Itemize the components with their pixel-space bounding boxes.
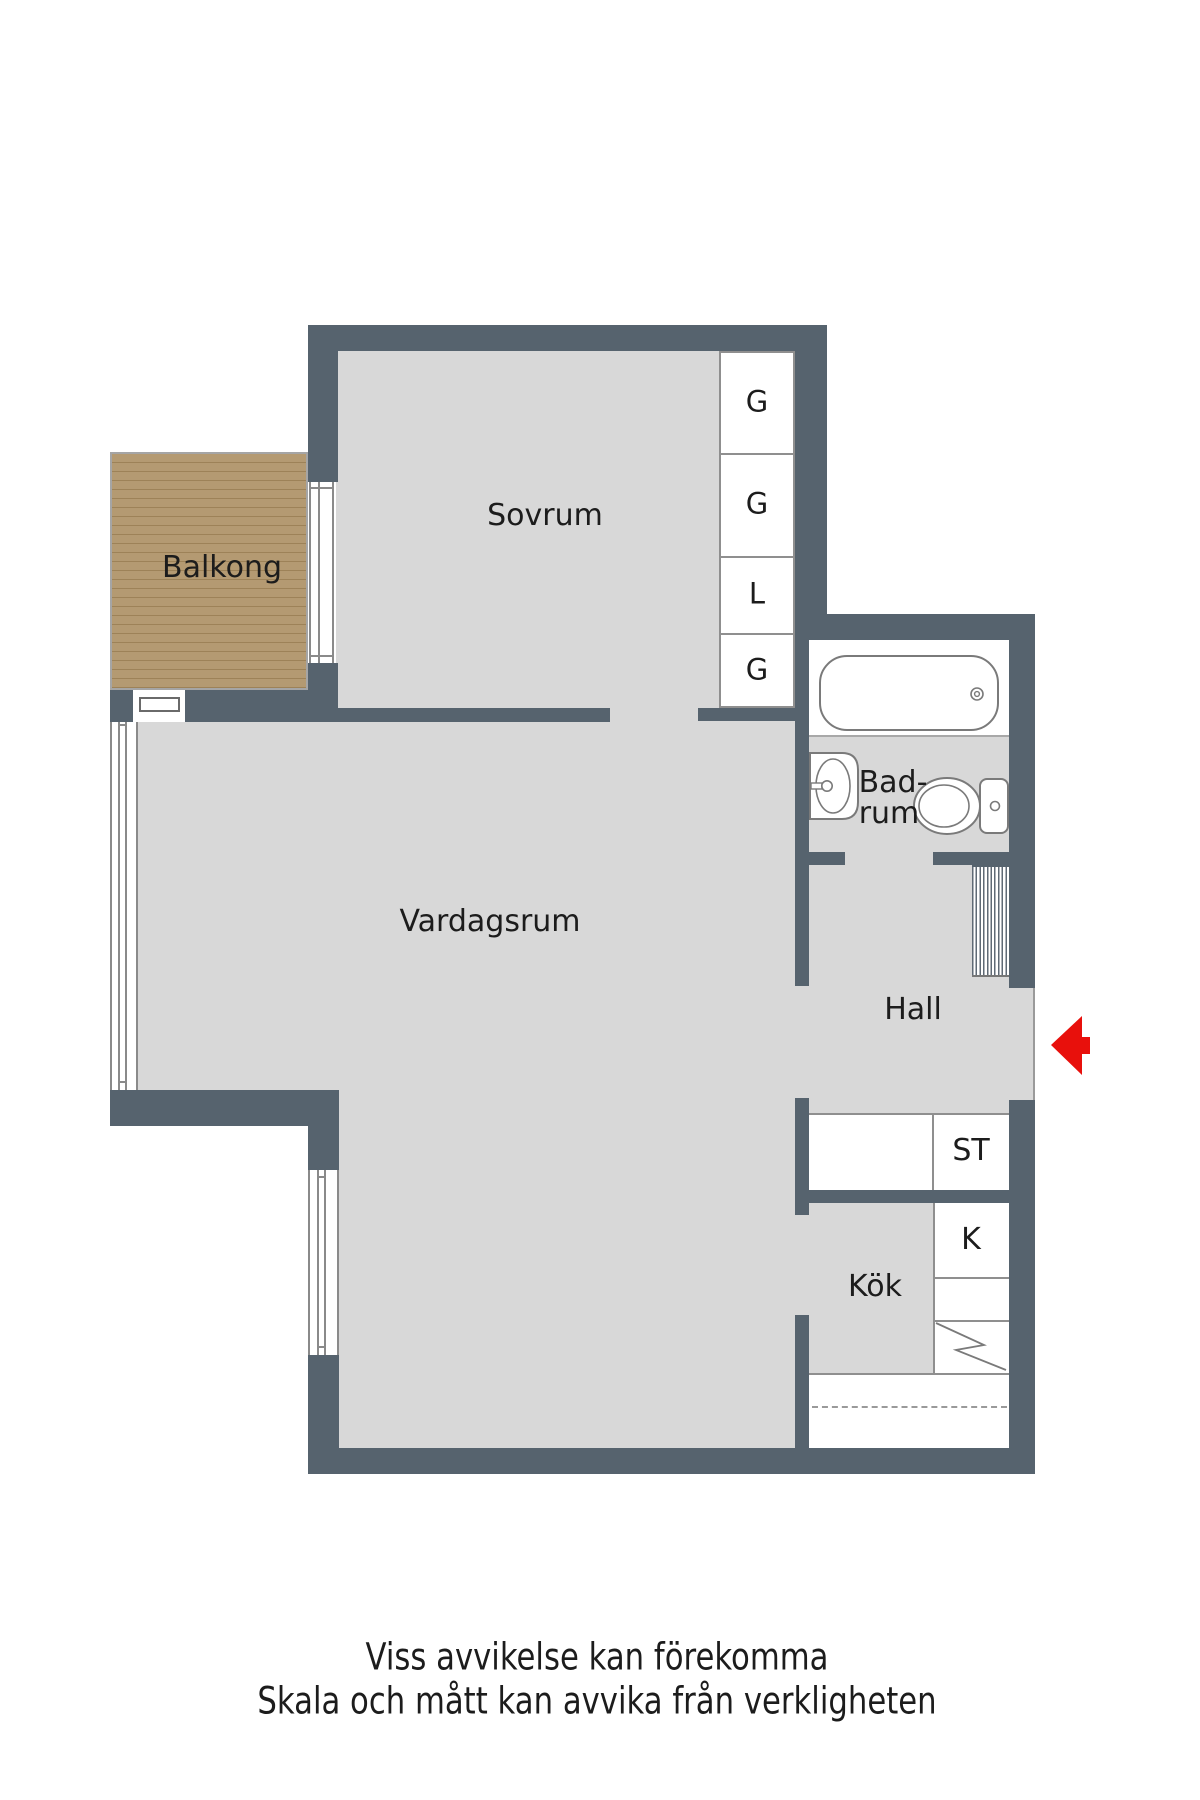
window-pane-line <box>118 722 120 1090</box>
wall-right-upper <box>795 351 827 614</box>
room-label-kok: Kök <box>848 1272 902 1302</box>
window-end-cap <box>317 1176 326 1178</box>
closet-label-g3: G <box>746 656 768 685</box>
appliance-divider <box>933 1320 1009 1322</box>
storage-label-st: ST <box>952 1136 989 1166</box>
window-pane-line <box>317 1170 319 1355</box>
window-balcony-door <box>309 482 334 663</box>
closet-label-g1: G <box>746 388 768 417</box>
window-pane-line <box>318 482 320 663</box>
hall-wardrobe <box>972 865 1009 977</box>
wall-bedroom-bottom <box>336 708 610 722</box>
closet-label-g2: G <box>746 490 768 519</box>
appliance-label-k: K <box>961 1225 981 1255</box>
wall-bathroom-hall-left <box>795 640 809 986</box>
window-end-cap <box>118 1081 127 1083</box>
floorplan: Sovrum Balkong Vardagsrum Bad- rum Hall … <box>0 0 1200 1800</box>
window-end-cap <box>311 487 332 489</box>
storage-divider <box>932 1113 934 1190</box>
window-pane-line <box>324 1170 326 1355</box>
bathtub-zone <box>809 640 1009 737</box>
wall-under-storage-row <box>809 1190 1009 1203</box>
kitchen-counter <box>809 1373 1009 1448</box>
wall-closet-bottom-stub <box>698 708 795 721</box>
room-label-balkong: Balkong <box>162 553 282 583</box>
entrance-opening <box>1009 988 1035 1100</box>
wall-top <box>308 325 827 351</box>
wall-right-middle <box>1009 640 1035 988</box>
window-livingroom-left <box>110 722 138 1090</box>
closet-divider <box>719 633 795 635</box>
wall-kitchen-left-upper <box>795 1098 809 1215</box>
entrance-arrow-icon <box>1051 1016 1090 1075</box>
wall-bottom <box>308 1448 1035 1474</box>
wall-lower-left-upper <box>308 1126 339 1170</box>
disclaimer-line2: Skala och mått kan avvika från verklighe… <box>257 1683 936 1720</box>
wall-bathroom-door-left-stub <box>795 852 845 865</box>
overhead-cabinet-dashed-line <box>812 1406 1007 1408</box>
room-label-hall: Hall <box>884 995 942 1025</box>
appliance-divider <box>933 1277 1009 1279</box>
wall-kitchen-left-lower <box>795 1315 809 1448</box>
wall-bathroom-door-right-stub <box>933 852 1035 865</box>
window-pane-line <box>125 722 127 1090</box>
wall-bedroom-left-upper <box>308 351 338 482</box>
wall-bathroom-top <box>795 614 1035 640</box>
closet-divider <box>719 453 795 455</box>
room-label-badrum-line2: rum <box>859 799 920 829</box>
window-end-cap <box>311 655 332 657</box>
hall-livingroom-opening <box>795 986 809 1098</box>
room-label-badrum-line1: Bad- <box>859 768 928 798</box>
room-label-vardagsrum: Vardagsrum <box>399 907 580 937</box>
window-end-cap <box>317 1346 326 1348</box>
livingroom-floor-lower <box>339 1094 795 1448</box>
balcony-door-leaf <box>139 697 180 712</box>
closet-label-l: L <box>749 580 765 609</box>
wall-bottom-left-corner <box>110 1090 339 1126</box>
wall-right-lower <box>1009 1100 1035 1474</box>
room-label-sovrum: Sovrum <box>487 501 603 531</box>
disclaimer-line1: Viss avvikelse kan förekomma <box>366 1639 829 1676</box>
closet-divider <box>719 556 795 558</box>
kitchen-doorway <box>795 1215 809 1315</box>
window-end-cap <box>118 724 127 726</box>
